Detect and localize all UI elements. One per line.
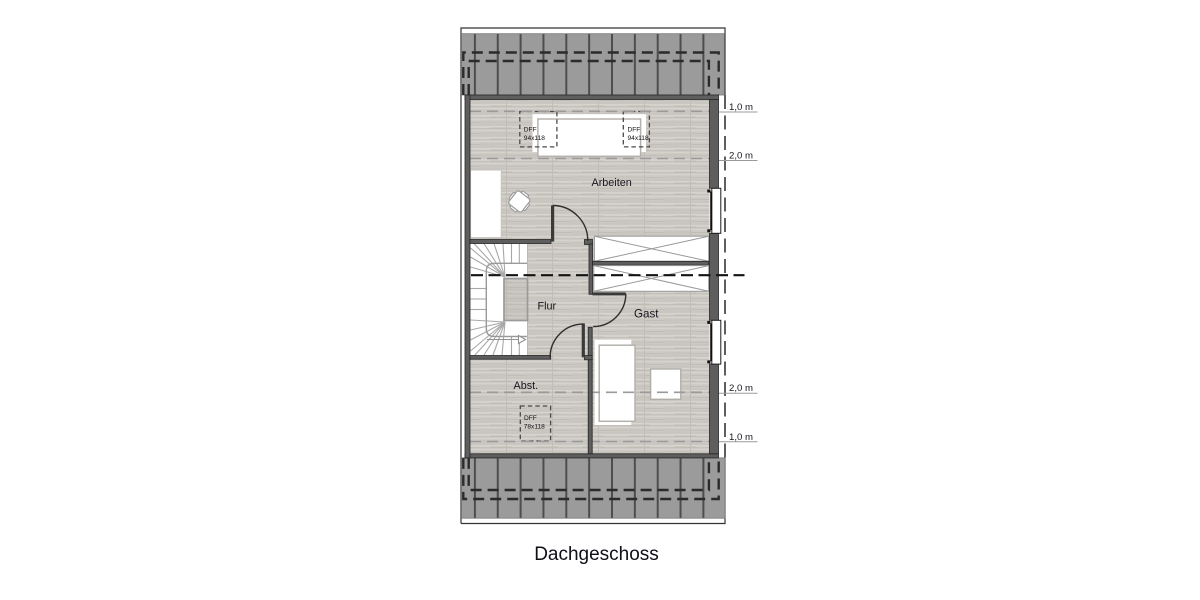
svg-text:DFF: DFF xyxy=(524,415,537,422)
svg-text:94x118: 94x118 xyxy=(524,135,545,142)
svg-text:78x118: 78x118 xyxy=(524,424,545,431)
svg-text:1,0 m: 1,0 m xyxy=(729,432,753,443)
svg-text:Flur: Flur xyxy=(538,301,557,313)
svg-text:DFF: DFF xyxy=(524,127,537,134)
svg-text:94x118: 94x118 xyxy=(628,135,649,142)
svg-text:Dachgeschoss: Dachgeschoss xyxy=(534,544,659,565)
svg-text:Gast: Gast xyxy=(634,308,659,321)
svg-text:DFF: DFF xyxy=(628,127,641,134)
svg-text:1,0 m: 1,0 m xyxy=(729,102,753,113)
svg-text:2,0 m: 2,0 m xyxy=(729,151,753,162)
svg-text:2,0 m: 2,0 m xyxy=(729,383,753,394)
svg-text:Abst.: Abst. xyxy=(514,380,539,392)
svg-text:Arbeiten: Arbeiten xyxy=(592,177,632,189)
